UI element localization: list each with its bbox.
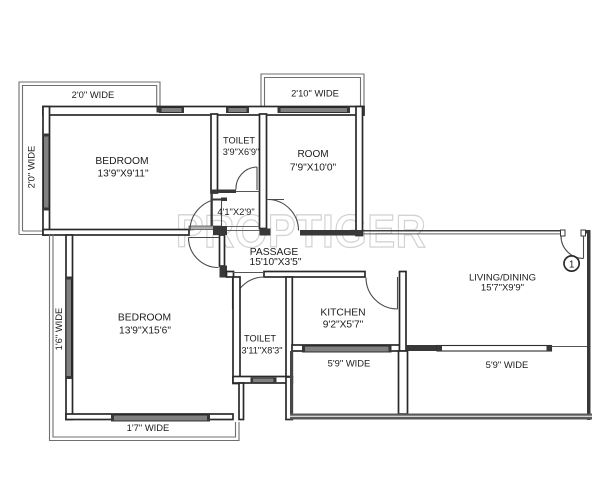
svg-text:9'2"X5'7": 9'2"X5'7" — [323, 320, 364, 331]
svg-text:TOILET: TOILET — [244, 334, 276, 344]
svg-text:5'9" WIDE: 5'9" WIDE — [328, 358, 371, 369]
svg-text:4'1"X2'9": 4'1"X2'9" — [217, 206, 254, 217]
svg-text:BEDROOM: BEDROOM — [95, 156, 148, 167]
svg-text:1'6" WIDE: 1'6" WIDE — [53, 308, 64, 351]
svg-text:3'9"X6'9": 3'9"X6'9" — [223, 147, 260, 157]
svg-text:BEDROOM: BEDROOM — [118, 313, 171, 324]
svg-text:13'9"X9'11": 13'9"X9'11" — [97, 169, 149, 180]
svg-text:2'0" WIDE: 2'0" WIDE — [26, 146, 37, 189]
svg-text:5'9" WIDE: 5'9" WIDE — [486, 359, 529, 370]
svg-text:TOILET: TOILET — [223, 136, 255, 146]
svg-text:2'0" WIDE: 2'0" WIDE — [72, 89, 115, 100]
svg-text:2'10" WIDE: 2'10" WIDE — [291, 88, 339, 99]
svg-text:15'7"X9'9": 15'7"X9'9" — [481, 283, 524, 294]
svg-text:13'9"X15'6": 13'9"X15'6" — [119, 326, 171, 337]
svg-text:1'7" WIDE: 1'7" WIDE — [127, 422, 170, 433]
svg-text:7'9"X10'0": 7'9"X10'0" — [290, 163, 337, 174]
svg-text:KITCHEN: KITCHEN — [320, 308, 365, 319]
svg-text:15'10"X3'5": 15'10"X3'5" — [250, 257, 302, 268]
svg-text:1: 1 — [569, 260, 575, 271]
svg-text:ROOM: ROOM — [297, 149, 328, 160]
svg-text:3'11"X8'3": 3'11"X8'3" — [241, 346, 282, 356]
